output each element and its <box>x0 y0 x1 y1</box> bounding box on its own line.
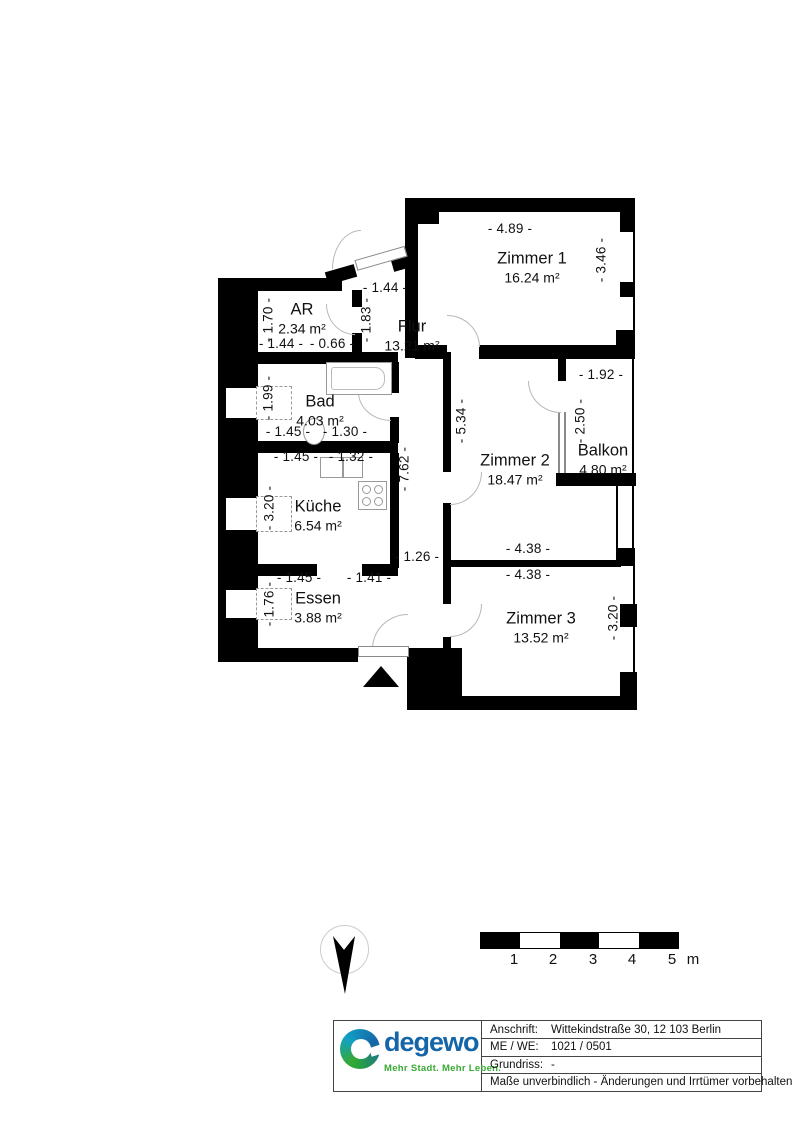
dimension-label: - 1.76 - <box>262 582 277 626</box>
scale-bar <box>480 932 679 949</box>
dimension-label: - 1.30 - <box>323 424 367 439</box>
window-zimmer3 <box>633 566 635 672</box>
bathtub-inner <box>331 367 385 390</box>
door-swing-arc-balkon <box>528 381 561 413</box>
scale-segment <box>599 933 638 948</box>
field-label-anschrift: Anschrift: <box>490 1024 538 1036</box>
window-balkon-wall <box>558 412 560 473</box>
scale-tick-label: 1 <box>510 951 518 968</box>
burner-icon <box>362 497 371 506</box>
dimension-label: - 1.32 - <box>329 449 373 464</box>
burner-icon <box>374 497 383 506</box>
field-label-grundriss: Grundriss: <box>490 1059 543 1071</box>
wall-zimmer2-zimmer3 <box>443 560 621 567</box>
field-value-anschrift: Wittekindstraße 30, 12 103 Berlin <box>551 1024 721 1036</box>
dimension-label: - 7.62 - <box>397 447 412 491</box>
wall-zimmer1-bottom <box>479 345 635 359</box>
door-swing-arc-zimmer1 <box>447 315 480 347</box>
dimension-label: - 1.44 - <box>259 336 303 351</box>
door-swing-arc-apartment-entry <box>372 614 408 649</box>
entrance-arrow-icon <box>363 666 399 687</box>
dimension-label: - 1.45 - <box>274 449 318 464</box>
wall-ar-top <box>218 278 342 291</box>
wall-balkon-stub <box>558 359 566 381</box>
dimension-label: - 1.41 - <box>347 570 391 585</box>
wall-zimmer1-top <box>405 198 635 212</box>
door-swing-arc-ar <box>326 304 355 335</box>
dimension-label: - 5.34 - <box>454 399 469 443</box>
dimension-label: - 1.26 - <box>395 549 439 564</box>
dimension-label: - 3.20 - <box>606 596 621 640</box>
disclaimer-text: Maße unverbindlich - Änderungen und Irrt… <box>490 1076 792 1088</box>
door-swing-arc-bad <box>358 392 391 421</box>
wall-zimmer3-left <box>443 637 451 657</box>
dimension-label: - 1.45 - <box>277 570 321 585</box>
scale-tick-label: 4 <box>628 951 636 968</box>
wall-zimmer2-left <box>443 503 451 562</box>
dimension-label: - 4.38 - <box>506 567 550 582</box>
scale-unit-label: m <box>687 951 700 968</box>
field-value-grundriss: - <box>551 1059 555 1071</box>
window-zimmer1 <box>633 228 635 332</box>
dimension-label: - 3.46 - <box>594 238 609 282</box>
door-swing-arc-zimmer3 <box>450 604 482 637</box>
title-block-line <box>481 1073 761 1074</box>
room-label-balkon: Balkon4.80 m² <box>578 442 628 479</box>
door-swing-arc-zimmer2 <box>450 472 482 505</box>
wall-niche <box>226 498 258 530</box>
title-block-line <box>481 1038 761 1039</box>
degewo-logo-icon <box>340 1029 380 1069</box>
title-block-line <box>481 1056 761 1057</box>
title-block: degewo Mehr Stadt. Mehr Leben. Anschrift… <box>333 1020 762 1092</box>
room-label-zimmer2: Zimmer 218.47 m² <box>480 452 550 489</box>
room-label-zimmer3: Zimmer 313.52 m² <box>506 610 576 647</box>
stove <box>358 481 387 510</box>
wall-zimmer3-bottom <box>462 696 635 710</box>
scale-segment <box>520 933 559 948</box>
wall-zimmer2-left <box>443 352 451 472</box>
wall-zimmer1-right <box>620 198 635 232</box>
dimension-label: - 2.50 - <box>573 399 588 443</box>
window-balkon-wall <box>564 412 566 473</box>
wall-niche <box>226 590 258 618</box>
room-label-zimmer1: Zimmer 116.24 m² <box>497 250 567 287</box>
door-leaf-apartment-entry <box>358 646 409 657</box>
burner-icon <box>362 485 371 494</box>
room-label-kueche: Küche6.54 m² <box>294 498 341 535</box>
wall-zimmer3-left <box>443 566 451 604</box>
balkon-right-edge <box>632 359 634 473</box>
dimension-label: - 1.92 - <box>579 367 623 382</box>
wall-niche <box>226 388 258 418</box>
scale-tick-label: 3 <box>589 951 597 968</box>
scale-tick-label: 5 <box>668 951 676 968</box>
floor-plan: Zimmer 116.24 m² AR2.34 m² Flur13.21 m² … <box>0 0 806 1140</box>
field-label-me-we: ME / WE: <box>490 1041 539 1053</box>
scale-segment <box>639 933 678 948</box>
scale-tick-label: 2 <box>549 951 557 968</box>
dimension-label: - 4.89 - <box>488 221 532 236</box>
room-label-essen: Essen3.88 m² <box>294 590 341 627</box>
wall-essen-bottom <box>218 648 358 662</box>
wall-bad-right <box>390 417 399 443</box>
dimension-label: - 1.83 - <box>359 298 374 342</box>
degewo-wordmark: degewo <box>384 1027 479 1058</box>
dimension-label: - 1.45 - <box>266 424 310 439</box>
dimension-label: - 4.38 - <box>506 541 550 556</box>
dimension-label: - 1.99 - <box>261 376 276 420</box>
scale-segment <box>481 933 520 948</box>
wall-entry-block <box>407 648 462 710</box>
room-label-flur: Flur13.21 m² <box>384 318 439 355</box>
field-value-me-we: 1021 / 0501 <box>551 1041 612 1053</box>
burner-icon <box>374 485 383 494</box>
room-label-ar: AR2.34 m² <box>278 301 325 338</box>
scale-segment <box>560 933 599 948</box>
dimension-label: - 3.20 - <box>262 486 277 530</box>
dimension-label: - 1.44 - <box>363 280 407 295</box>
degewo-tagline: Mehr Stadt. Mehr Leben. <box>384 1063 501 1074</box>
wall-zimmer3-right-corner <box>620 672 637 710</box>
dimension-label: - 0.66 - <box>310 336 354 351</box>
